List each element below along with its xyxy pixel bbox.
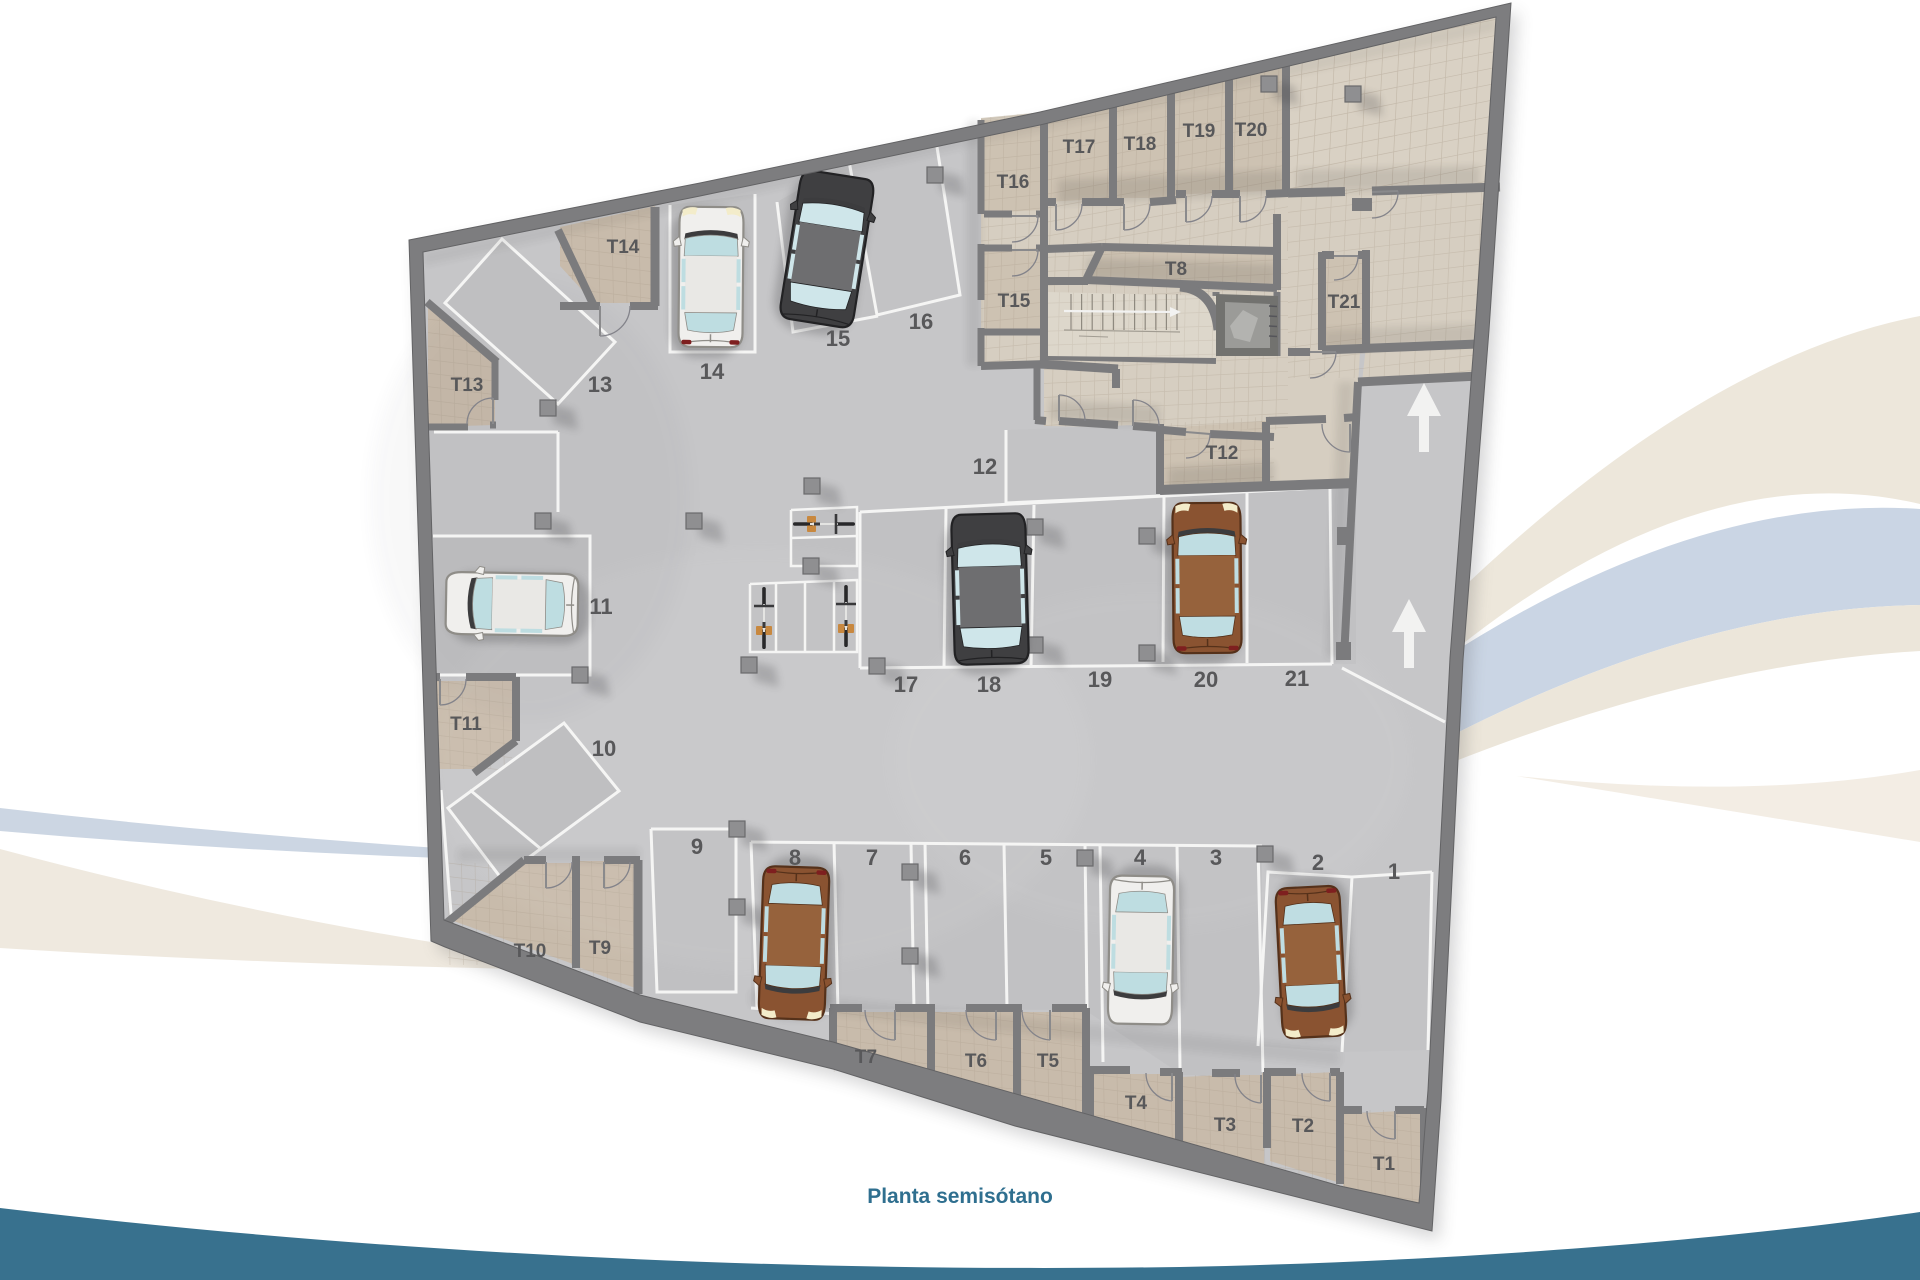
svg-text:T17: T17	[1063, 137, 1096, 158]
svg-text:T12: T12	[1206, 443, 1239, 464]
svg-text:T3: T3	[1214, 1115, 1236, 1136]
svg-text:T2: T2	[1292, 1116, 1314, 1137]
svg-text:T20: T20	[1235, 120, 1268, 141]
svg-text:19: 19	[1088, 667, 1112, 692]
svg-text:T19: T19	[1183, 121, 1216, 142]
svg-text:12: 12	[973, 454, 997, 479]
svg-text:T9: T9	[589, 938, 611, 959]
svg-text:T6: T6	[965, 1051, 987, 1072]
svg-text:3: 3	[1210, 845, 1222, 870]
svg-text:6: 6	[959, 845, 971, 870]
svg-text:T21: T21	[1328, 292, 1361, 313]
svg-text:T4: T4	[1125, 1093, 1148, 1114]
svg-text:20: 20	[1194, 667, 1218, 692]
svg-text:17: 17	[894, 672, 918, 697]
svg-text:T5: T5	[1037, 1051, 1060, 1072]
svg-text:T11: T11	[450, 714, 482, 735]
svg-text:T14: T14	[607, 237, 640, 258]
svg-text:9: 9	[691, 834, 703, 859]
svg-text:T1: T1	[1373, 1154, 1396, 1175]
svg-text:T7: T7	[855, 1047, 877, 1068]
svg-text:5: 5	[1040, 845, 1052, 870]
svg-text:T15: T15	[998, 291, 1031, 312]
svg-text:13: 13	[588, 372, 612, 397]
svg-text:18: 18	[977, 672, 1001, 697]
svg-text:8: 8	[789, 845, 801, 870]
svg-text:T13: T13	[451, 375, 484, 396]
svg-text:16: 16	[909, 309, 933, 334]
svg-text:T8: T8	[1165, 259, 1187, 280]
svg-text:21: 21	[1285, 666, 1309, 691]
svg-text:7: 7	[866, 845, 878, 870]
svg-text:2: 2	[1312, 850, 1324, 875]
svg-text:T18: T18	[1124, 134, 1157, 155]
svg-text:15: 15	[826, 326, 850, 351]
svg-text:4: 4	[1134, 845, 1147, 870]
svg-text:11: 11	[589, 594, 612, 619]
svg-text:Planta semisótano: Planta semisótano	[867, 1185, 1053, 1208]
svg-text:14: 14	[700, 359, 725, 384]
svg-text:T10: T10	[514, 941, 547, 962]
svg-text:10: 10	[592, 736, 616, 761]
svg-text:1: 1	[1388, 859, 1400, 884]
svg-text:T16: T16	[997, 172, 1030, 193]
